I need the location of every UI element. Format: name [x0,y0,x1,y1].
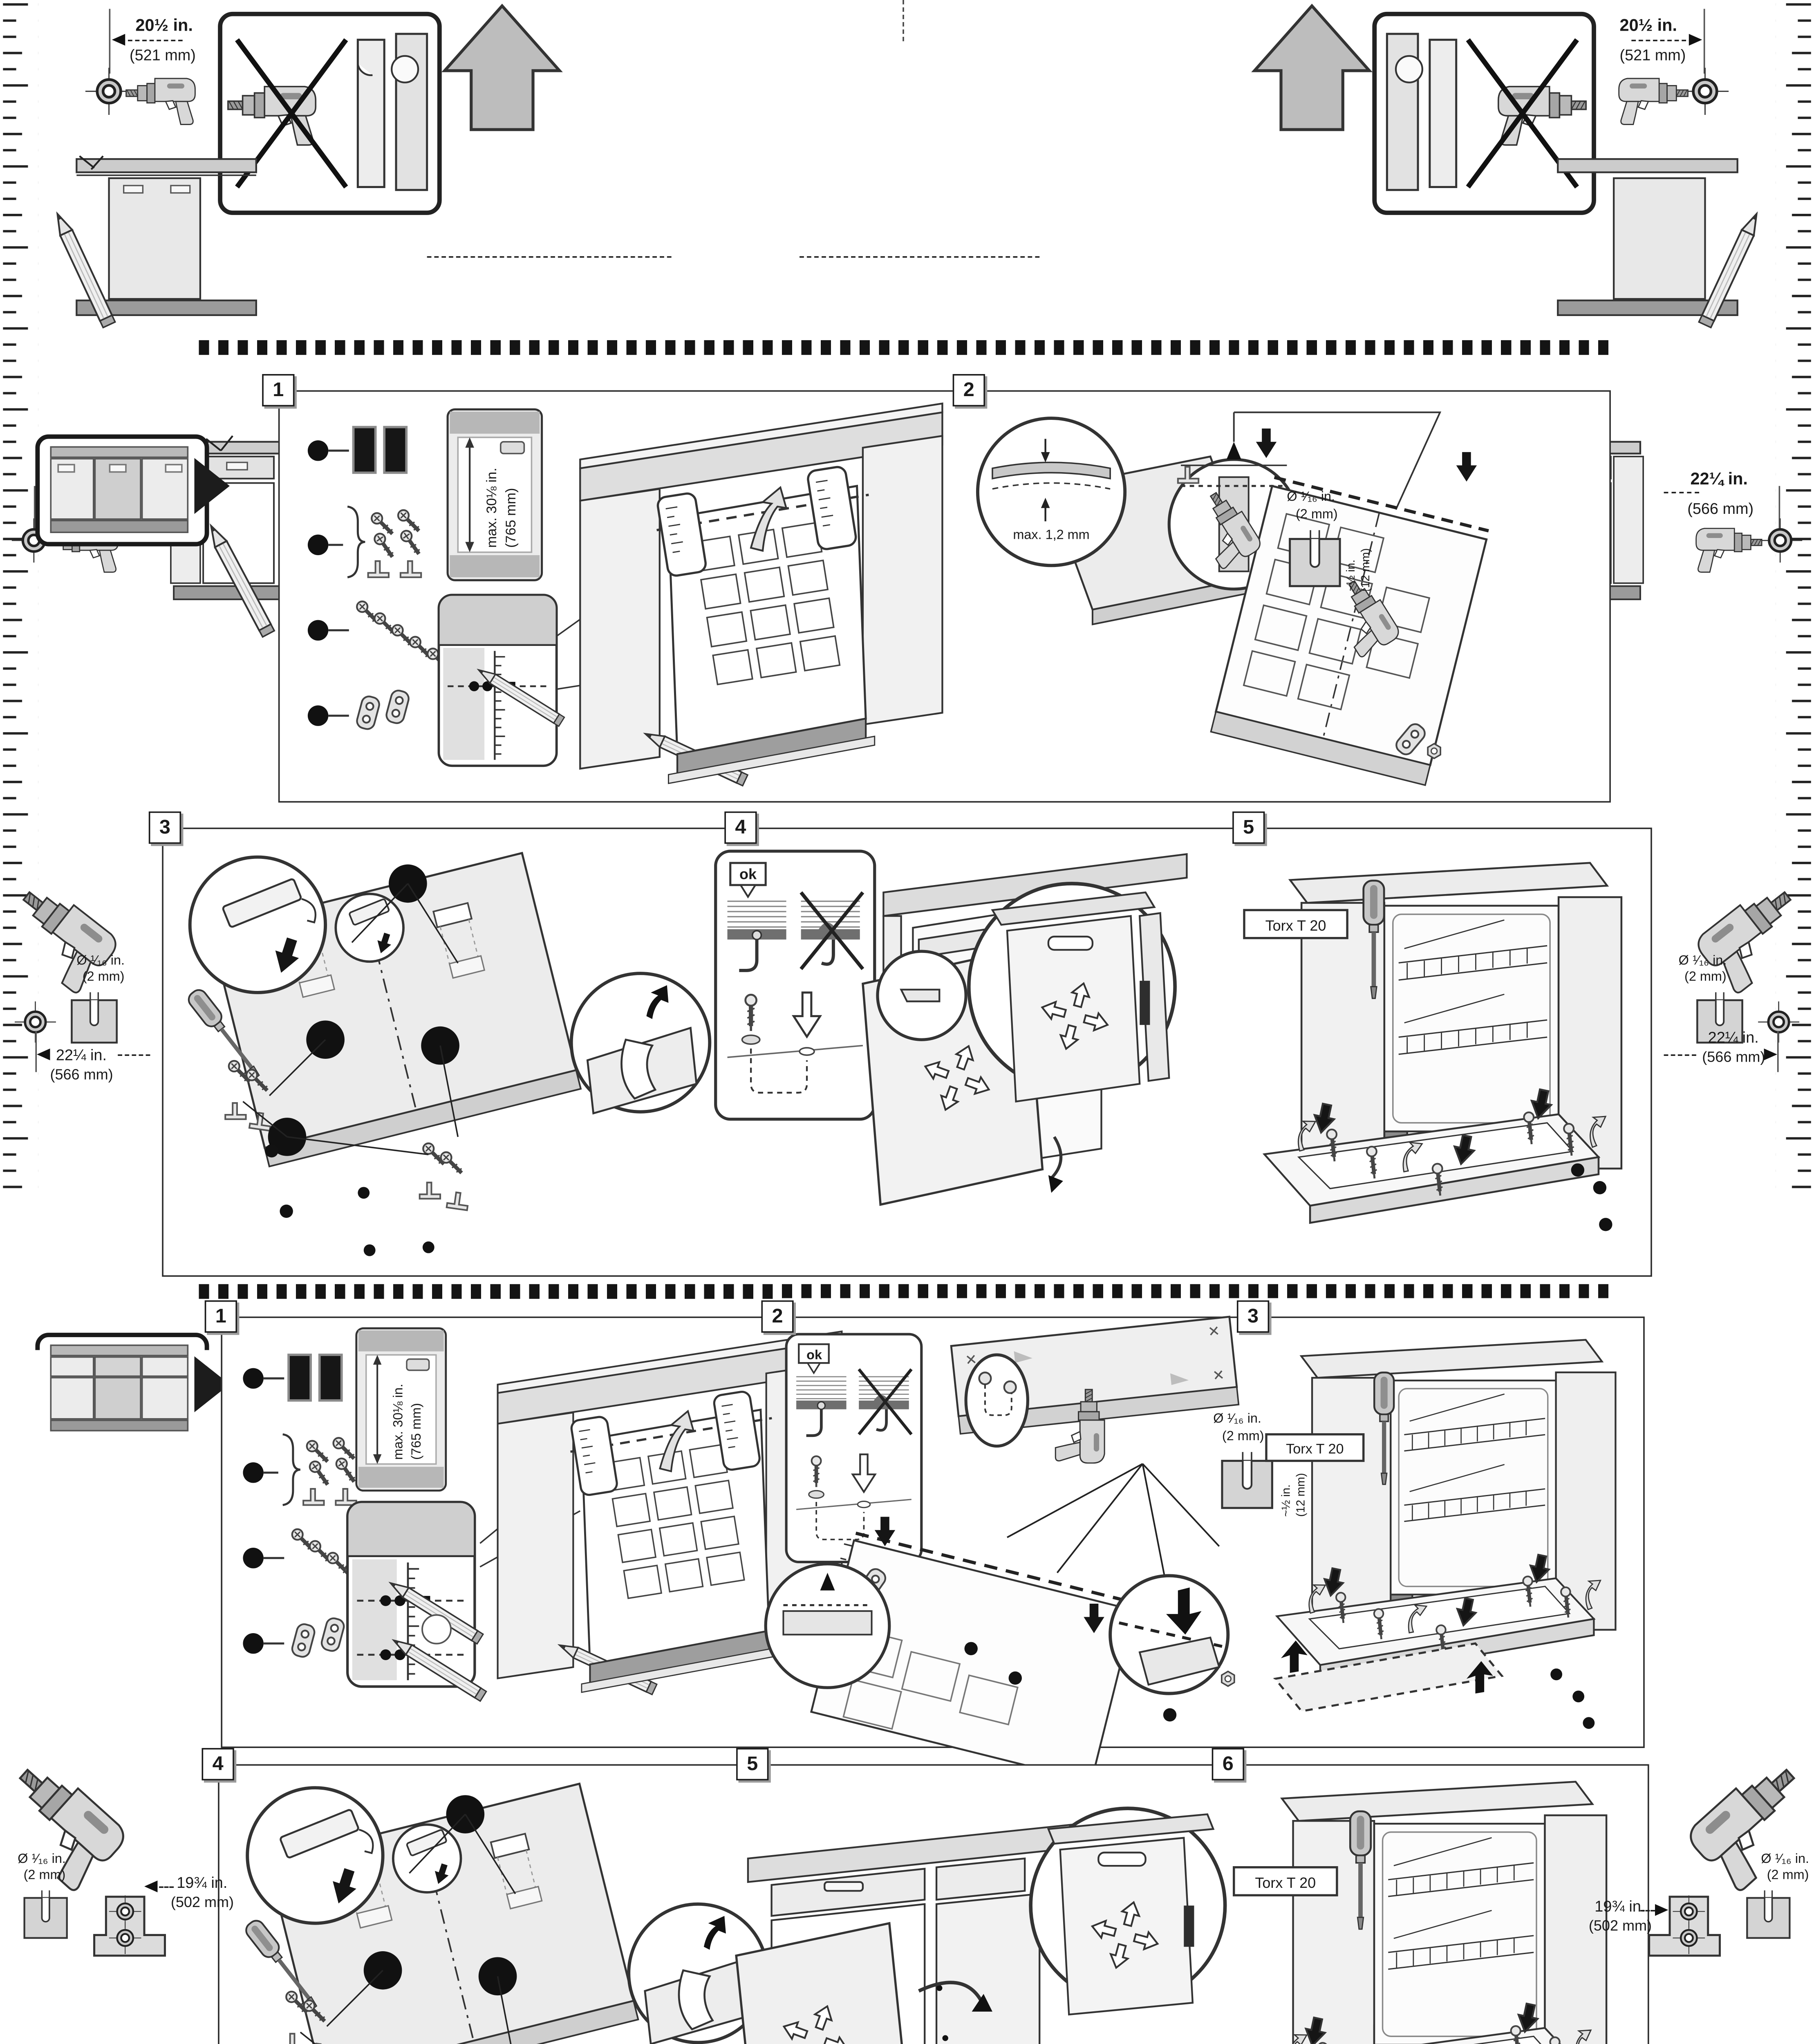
section1-pointer-icon [195,458,230,514]
max-door-height-mm: (765 mm) [409,1403,423,1460]
scatter-dot [280,1205,293,1218]
dim-upper-right-in: 22¼ in. [1690,471,1747,489]
scene-drawerdoor-step3: Torx T 20 [1254,1322,1640,1739]
max-gap-label: max. 1,2 mm [1013,527,1089,542]
step-number: 5 [1243,816,1254,838]
step-number: 1 [215,1305,226,1327]
step-number: 2 [772,1305,783,1327]
dim-lower-left-in: 19¾ in. [177,1876,227,1892]
arrow-up-icon [445,6,560,130]
dim-mid-left-dia-mm: (2 mm) [83,970,125,984]
scatter-dot [423,1242,434,1253]
max-door-height-in: max. 30⅛ in. [391,1384,405,1460]
torx-tool-label: Torx T 20 [1286,1441,1344,1457]
step-badge-2: 2 [953,374,985,406]
scatter-dot [1550,1668,1562,1680]
dimension-arrow-icon [144,1880,157,1892]
scatter-dot [1583,1717,1595,1729]
scene-drawerdoor-step1: max. 30⅛ in. (765 mm) [233,1322,851,1739]
step-number: 6 [1223,1753,1234,1775]
dimension-dash [159,1887,174,1888]
step-number: 4 [213,1753,224,1775]
scatter-dot [965,1642,978,1655]
step-number: 5 [747,1753,758,1775]
scene-fulldoor-step2: max. 1,2 mm Ø ¹⁄₁₆ in. [960,401,1605,787]
step-badge-1b: 1 [205,1300,237,1333]
drill-margin-mid-left [0,883,162,1097]
dimension-dash [1640,1910,1655,1912]
scatter-dot [364,1244,376,1256]
dim-top-right-mm: (521 mm) [1620,49,1686,65]
dim-top-left-in: 20½ in. [135,18,193,35]
scene-drawerdoor-step4 [224,1770,763,2044]
scatter-dot [1163,1708,1176,1721]
scatter-dot [1572,1690,1584,1702]
step-number: 3 [159,816,170,838]
scene-fulldoor-step3 [166,834,699,1269]
dim-mid-left-dia-in: Ø ¹⁄₁₆ in. [76,954,125,968]
step-number: 2 [963,379,974,401]
step-badge-6b: 6 [1212,1748,1244,1780]
dim-lower-left-dia-mm: (2 mm) [24,1869,66,1883]
max-door-height-mm: (765 mm) [503,488,519,548]
cut-separator-1 [199,340,1612,355]
step-badge-3b: 3 [1237,1300,1269,1333]
scatter-dot [1599,1218,1612,1231]
scatter-dot [358,1187,370,1199]
step-badge-4: 4 [724,811,757,844]
scatter-dot [1330,776,1341,788]
step-number: 1 [273,379,284,401]
dim-mid-left-in: 22¼ in. [56,1049,107,1065]
dim-lower-right-dia-mm: (2 mm) [1767,1869,1809,1883]
ok-label: ok [806,1347,822,1362]
scene-fulldoor-step5: Torx T 20 [1227,834,1643,1269]
dim-lower-right-mm: (502 mm) [1589,1920,1652,1936]
scatter-dot [1104,717,1119,732]
dimension-dash [121,40,182,41]
cut-separator-2 [199,1284,1612,1299]
cabinet-marking-sketch [44,147,280,336]
scene-fulldoor-step1: max. 30⅛ in. (765 mm) [291,401,942,787]
dim-mid-left-mm: (566 mm) [50,1069,113,1085]
dim-lower-right-dia-in: Ø ¹⁄₁₆ in. [1761,1853,1809,1867]
dim-lower-left-dia-in: Ø ¹⁄₁₆ in. [18,1853,66,1867]
dim-top-right-in: 20½ in. [1620,18,1677,35]
writing-line-right [800,256,1039,258]
installation-sheet-page: 20½ in. (521 mm) 20½ in. (521 mm) 22¼ in… [0,0,1814,2044]
dim-mid-right-mm: (566 mm) [1702,1051,1765,1067]
writing-line-left [427,256,672,258]
step-badge-3: 3 [149,811,181,844]
dimension-arrow-icon [112,34,125,46]
step-badge-1: 1 [262,374,294,406]
section2-cabinet-type-icon [35,1333,209,1445]
hinge-bracket-diagram [91,1894,174,1965]
step-badge-5: 5 [1232,811,1265,844]
drill-depth-diagram [71,990,118,1043]
dim-lower-right-in: 19¾ in. [1595,1900,1645,1916]
scene-fulldoor-step4: ok [704,834,1198,1269]
drill-icon [124,65,209,126]
drill-diameter-mm: (2 mm) [1296,507,1338,521]
step-badge-2b: 2 [761,1300,793,1333]
dim-lower-left-mm: (502 mm) [171,1897,234,1912]
step-number: 3 [1247,1305,1259,1327]
dimension-line [108,9,110,74]
dim-mid-right-dia-mm: (2 mm) [1684,970,1727,984]
section1-cabinet-type-icon [35,435,209,547]
ok-label: ok [739,866,757,883]
drill-depth-mm: (12 mm) [1359,548,1372,592]
scatter-dot [1147,748,1162,763]
step-badge-5b: 5 [736,1748,768,1780]
dim-mid-right-in: 22¼ in. [1708,1031,1759,1047]
dim-top-left-mm: (521 mm) [130,49,196,65]
drill-depth-diagram [24,1888,68,1938]
drill-icon [0,1735,164,1912]
step-badge-4b: 4 [202,1748,234,1780]
scatter-dot [1009,1672,1022,1685]
max-door-height-in: max. 30⅛ in. [484,468,499,548]
torx-tool-label: Torx T 20 [1265,917,1326,934]
scatter-dot [1571,1163,1584,1177]
drill-depth-in: ~½ in. [1344,560,1357,592]
scatter-dot [265,1144,278,1157]
torx-tool-label: Torx T 20 [1255,1874,1316,1891]
dimension-arrow-icon [1655,1904,1668,1916]
drill-diameter-in: Ø ¹⁄₁₆ in. [1287,489,1335,504]
dim-upper-right-mm: (566 mm) [1687,502,1754,518]
dim-mid-right-dia-in: Ø ¹⁄₁₆ in. [1679,954,1727,968]
door-weight-range: 3 - 10 kg [1232,745,1292,762]
step-number: 4 [735,816,746,838]
scatter-dot [1593,1181,1606,1194]
scene-drawerdoor-step5 [733,1770,1219,2044]
